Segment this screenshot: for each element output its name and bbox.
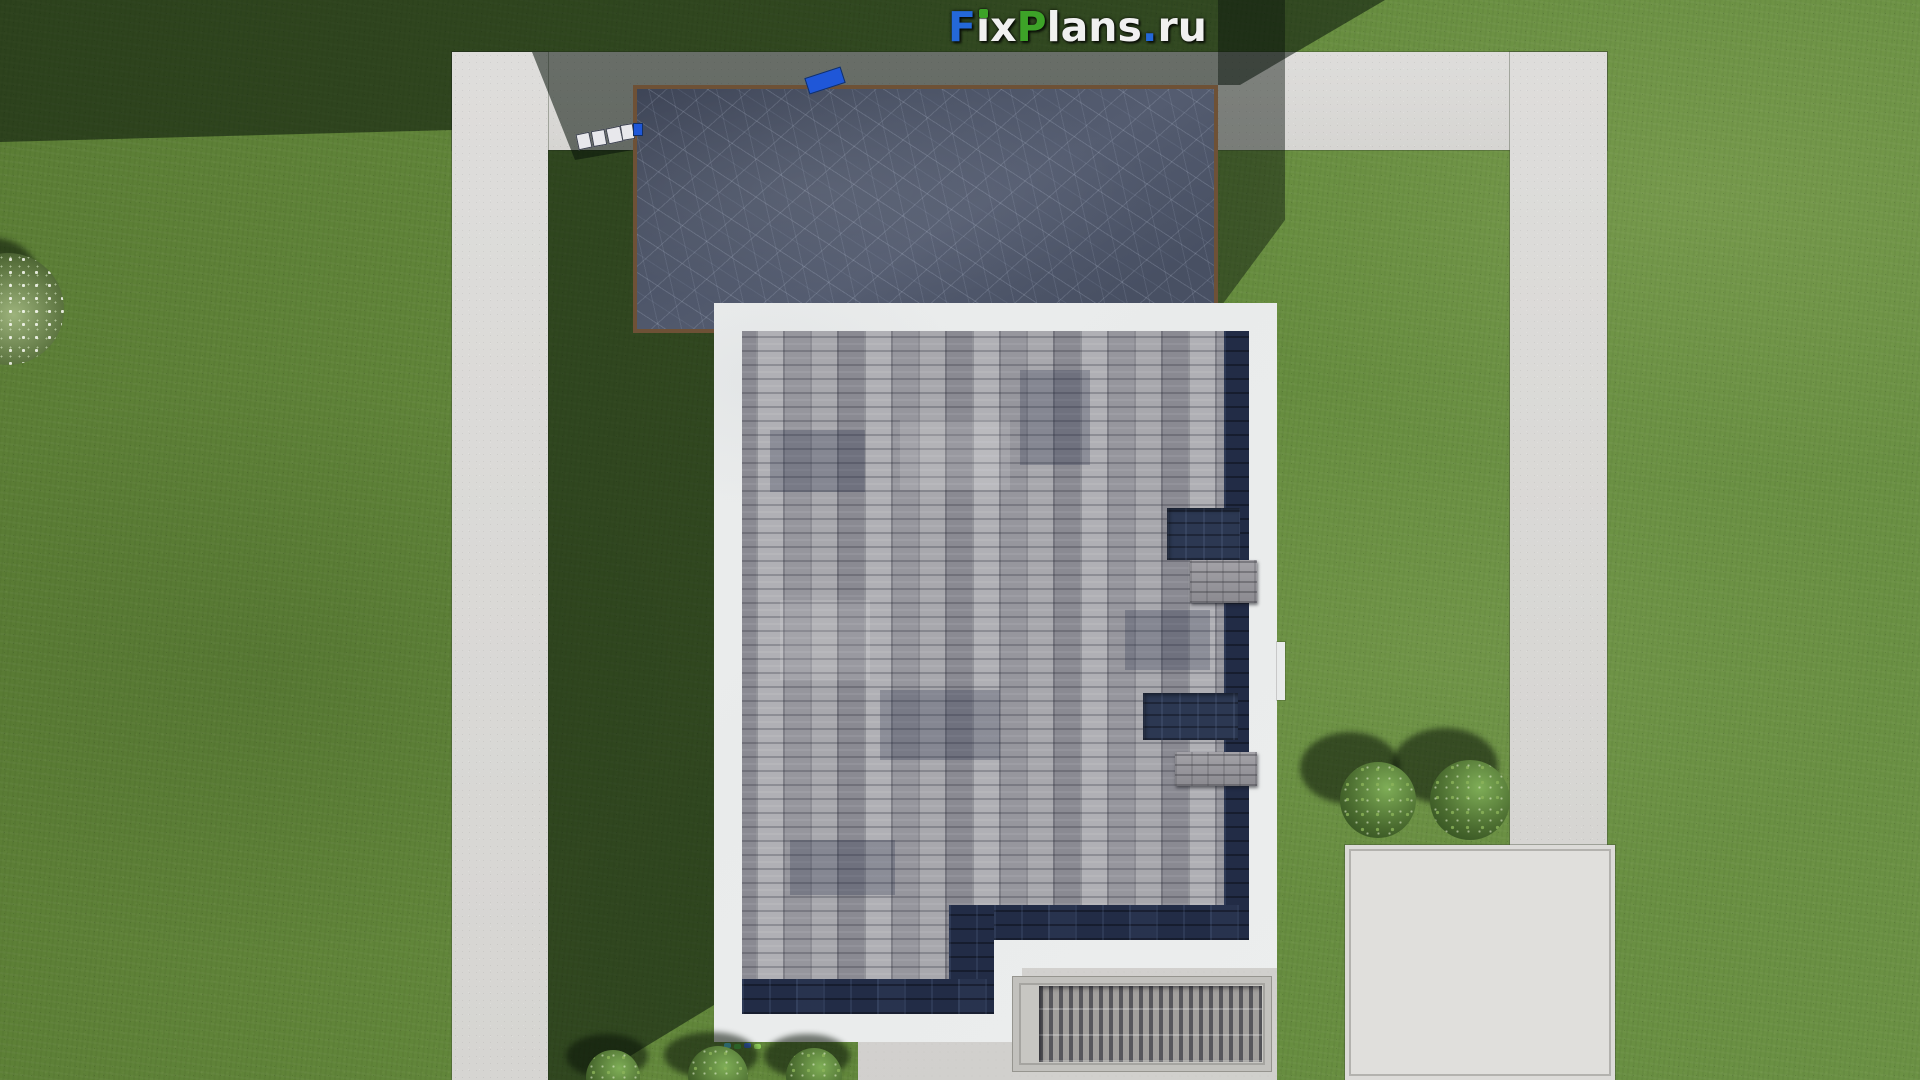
roof-navy-border-right [1224,331,1249,940]
logo-segment: P [1017,4,1047,50]
path-right [1510,52,1607,845]
roof-navy-border-bottom [742,979,994,1014]
shingle-patch [790,840,895,895]
aerial-site-render: FixPlans.ru [0,0,1920,1080]
roof-vent-inset [1167,508,1240,560]
white-panel [575,132,592,151]
blue-object-small [633,123,643,136]
garage-roof [633,85,1218,333]
garage-roof-scratch-texture [637,89,1214,329]
shingle-patch [770,430,865,492]
logo-segment: ru [1157,4,1206,50]
shingle-patch [1020,370,1090,465]
white-panel [591,129,608,147]
grate-ribs [1039,986,1262,1062]
chimney-block [1190,560,1257,603]
logo-segment: lans [1047,4,1142,50]
logo-i-dot [979,9,988,18]
shingle-patch [880,690,1000,760]
logo-segment: . [1142,4,1158,50]
shingle-highlight [780,600,870,680]
parapet-drain-tab [1277,642,1285,700]
bush [1430,760,1510,840]
concrete-pad [1345,845,1615,1080]
chimney-block [1175,752,1257,786]
roof-vent-inset [1143,693,1238,740]
path-left [452,52,548,1080]
logo-segment: F [948,4,976,50]
shingle-highlight [900,420,1010,490]
ribbed-grate [1012,976,1272,1072]
shingle-patch [1125,610,1210,670]
bush [1340,762,1416,838]
roof-navy-border-step [994,905,1249,940]
